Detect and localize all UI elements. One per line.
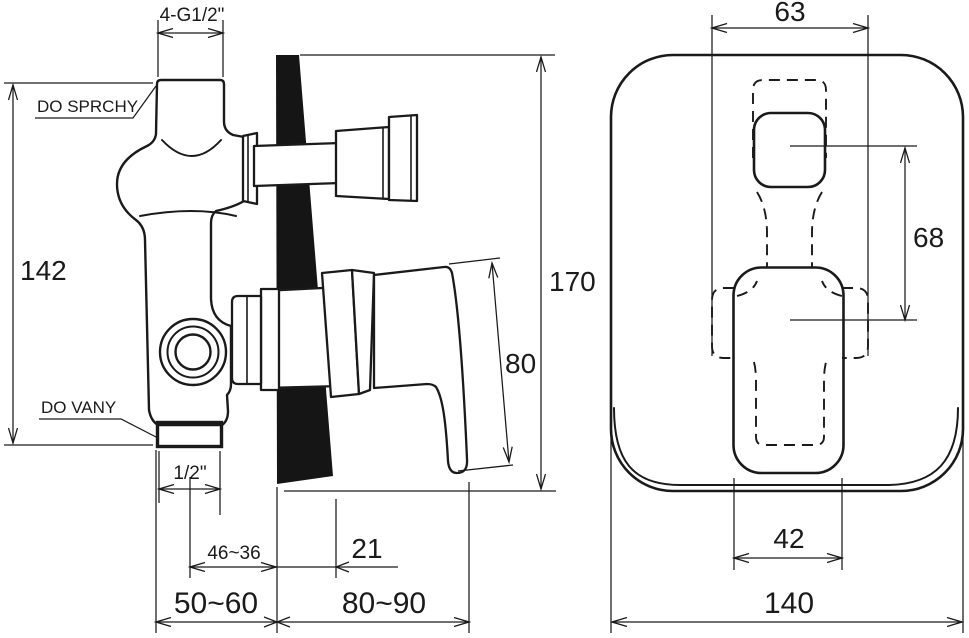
shower-cap — [389, 115, 417, 201]
dim-depth-range-right: 80~90 — [342, 587, 426, 620]
dim-handle-length: 80 — [505, 348, 536, 379]
dim-plate-width: 140 — [764, 587, 814, 620]
dim-wall-clearance: 21 — [351, 533, 382, 564]
dim-lever-width: 42 — [773, 523, 804, 554]
shower-connector — [336, 127, 389, 199]
side-view-body — [117, 80, 257, 447]
cartridge-collar — [261, 289, 279, 390]
front-view-plate — [611, 55, 963, 491]
dim-center-distance: 68 — [913, 222, 944, 253]
lever-front — [734, 268, 844, 474]
dim-pipe-offset: 46~36 — [207, 543, 260, 564]
wall-section — [276, 55, 333, 484]
body-saddle-curve — [162, 140, 221, 156]
label-to-bath: DO VANY — [41, 398, 116, 417]
label-to-shower: DO SPRCHY — [37, 97, 138, 116]
shower-pipe — [254, 143, 340, 186]
to-bath-leader — [39, 419, 158, 438]
dim-depth-range-left: 50~60 — [174, 587, 258, 620]
through-wall-parts — [232, 115, 467, 473]
installation-drawing: 4-G1/2" DO SPRCHY 142 DO VANY 170 80 1/2… — [0, 0, 969, 638]
dim-cutout-width: 63 — [774, 0, 805, 27]
knob-front — [754, 113, 825, 187]
dim-body-height: 142 — [20, 255, 67, 286]
dim-total-height: 170 — [549, 266, 596, 297]
dim-thread-top: 4-G1/2" — [160, 5, 225, 26]
technical-drawing-svg: 4-G1/2" DO SPRCHY 142 DO VANY 170 80 1/2… — [0, 0, 969, 638]
handle-lever — [374, 267, 467, 473]
body-waist-curve — [140, 211, 236, 216]
bath-outlet-port — [160, 319, 226, 385]
